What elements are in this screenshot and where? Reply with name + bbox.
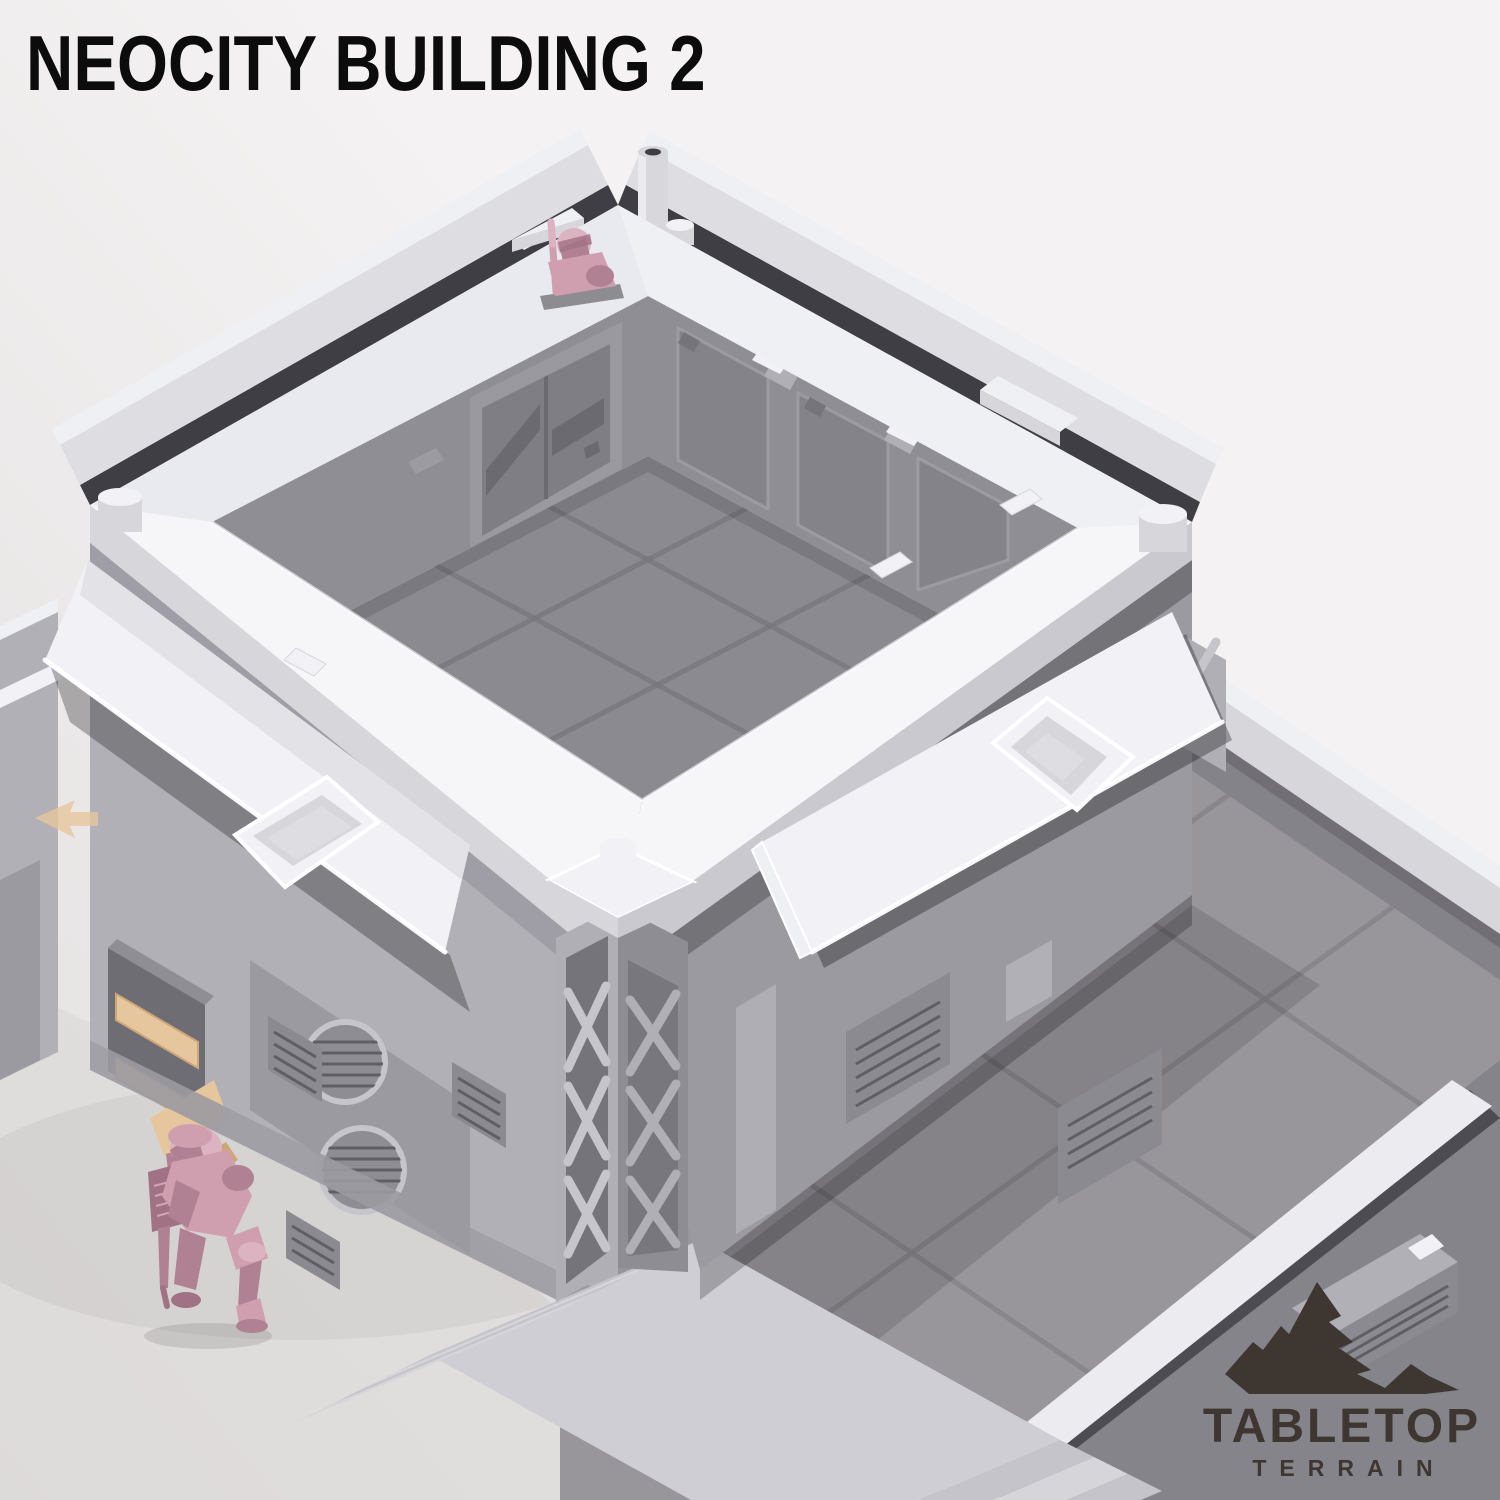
corner-cylinder-left	[98, 488, 142, 506]
corner-cylinder-right	[1139, 504, 1187, 524]
logo-subtext: TERRAIN	[1252, 1455, 1445, 1481]
roof-vent-cylinder	[666, 219, 694, 231]
product-render-page: TABLETOP TERRAIN NEOCITY BUILDING 2	[0, 0, 1500, 1500]
knee-pad	[238, 1242, 266, 1262]
logo-wordmark: TABLETOP	[1203, 1400, 1481, 1453]
page-title: NEOCITY BUILDING 2	[26, 18, 706, 109]
render-scene: TABLETOP TERRAIN	[0, 0, 1500, 1500]
column-cap-cylinder	[600, 838, 636, 854]
truss-column	[548, 838, 694, 1302]
